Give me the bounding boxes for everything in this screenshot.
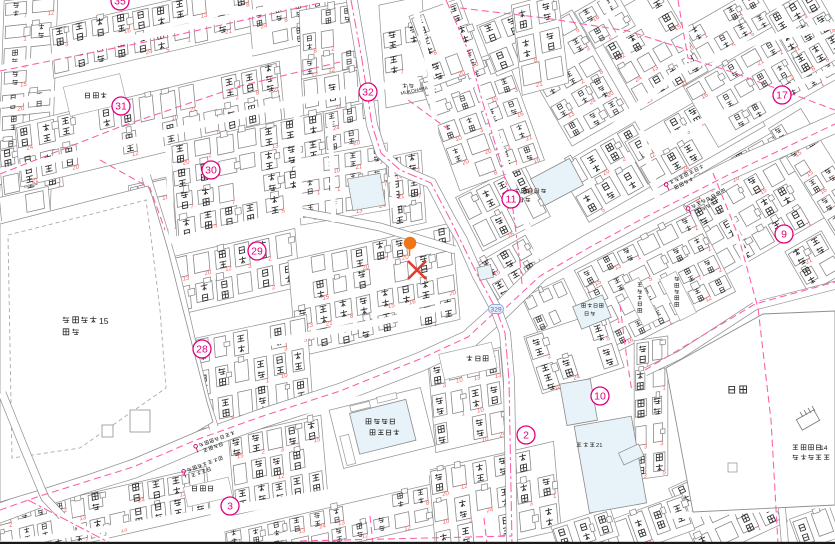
svg-text:3: 3	[643, 472, 647, 480]
svg-text:29: 29	[251, 246, 263, 258]
svg-text:32: 32	[362, 87, 374, 99]
svg-text:14: 14	[820, 445, 828, 452]
svg-text:15: 15	[20, 81, 28, 89]
svg-text:1: 1	[662, 384, 666, 392]
svg-text:21: 21	[596, 443, 602, 449]
svg-text:21: 21	[355, 163, 363, 171]
svg-text:5: 5	[663, 469, 667, 477]
svg-text:3: 3	[644, 443, 648, 451]
svg-text:20: 20	[17, 105, 25, 113]
svg-text:9: 9	[781, 229, 787, 241]
svg-text:3: 3	[660, 440, 664, 448]
svg-text:11: 11	[506, 194, 517, 206]
svg-text:329: 329	[490, 307, 502, 314]
svg-text:17: 17	[776, 90, 788, 102]
svg-text:10: 10	[594, 391, 606, 403]
svg-text:30: 30	[205, 165, 217, 177]
svg-text:15: 15	[99, 316, 109, 326]
svg-text:3: 3	[227, 501, 233, 513]
svg-text:28: 28	[196, 344, 208, 356]
svg-text:12: 12	[48, 9, 56, 17]
svg-text:35: 35	[114, 0, 126, 8]
svg-text:2: 2	[523, 430, 529, 442]
svg-text:31: 31	[115, 101, 127, 113]
